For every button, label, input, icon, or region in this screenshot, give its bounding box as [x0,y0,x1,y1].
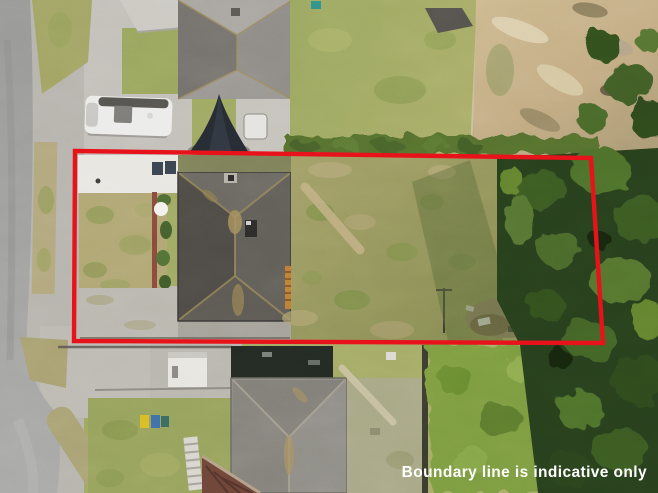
aerial-photo: Boundary line is indicative only [0,0,658,493]
disclaimer-text: Boundary line is indicative only [402,464,647,481]
aerial-photo-listing-image: Boundary line is indicative only [0,0,658,493]
photo-grain [0,0,658,493]
